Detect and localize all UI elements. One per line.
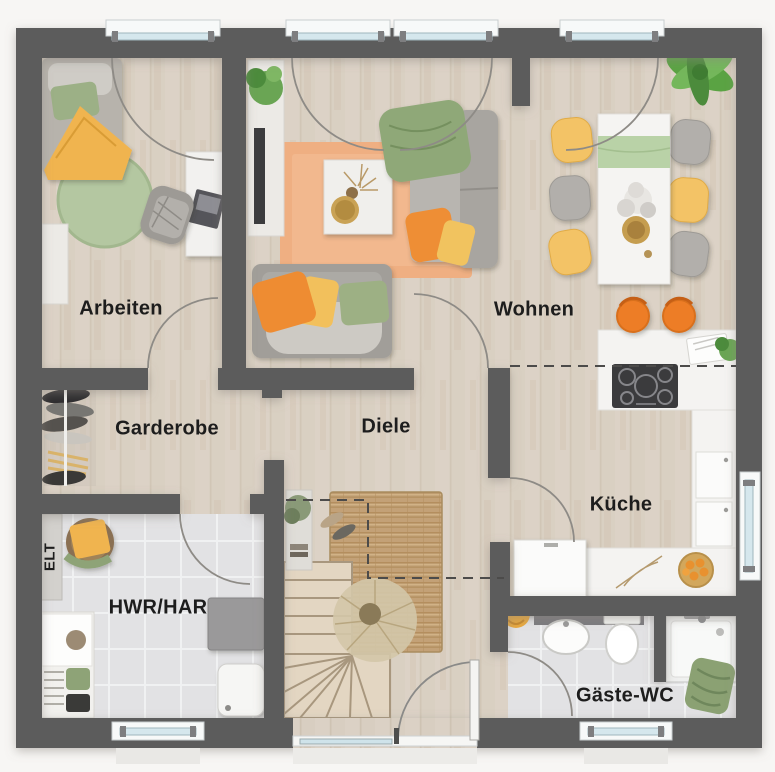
laundry-basket [66,518,114,566]
floor-plan-drawing [0,0,775,772]
kitchen-bottom-counter [584,548,736,596]
heat-pump-unit [208,598,264,650]
window-office [106,20,220,42]
floor-plan: Arbeiten Wohnen Garderobe Diele Küche HW… [0,0,775,772]
coat-rack [39,386,96,487]
coffee-table [324,160,392,234]
office-wall-shelf [42,224,68,304]
wc-toilet [604,613,640,664]
tv-sideboard [246,60,284,236]
window-dining [560,20,664,42]
washing-machine [218,664,264,716]
daybed [42,58,132,180]
pampas-plant [333,578,417,662]
utility-shelf [40,612,94,718]
hall-shelf [284,490,312,570]
window-living-2 [394,20,498,42]
armchair [250,264,392,358]
window-living-1 [286,20,390,42]
window-kitchen [740,472,760,580]
cooktop [612,364,678,408]
